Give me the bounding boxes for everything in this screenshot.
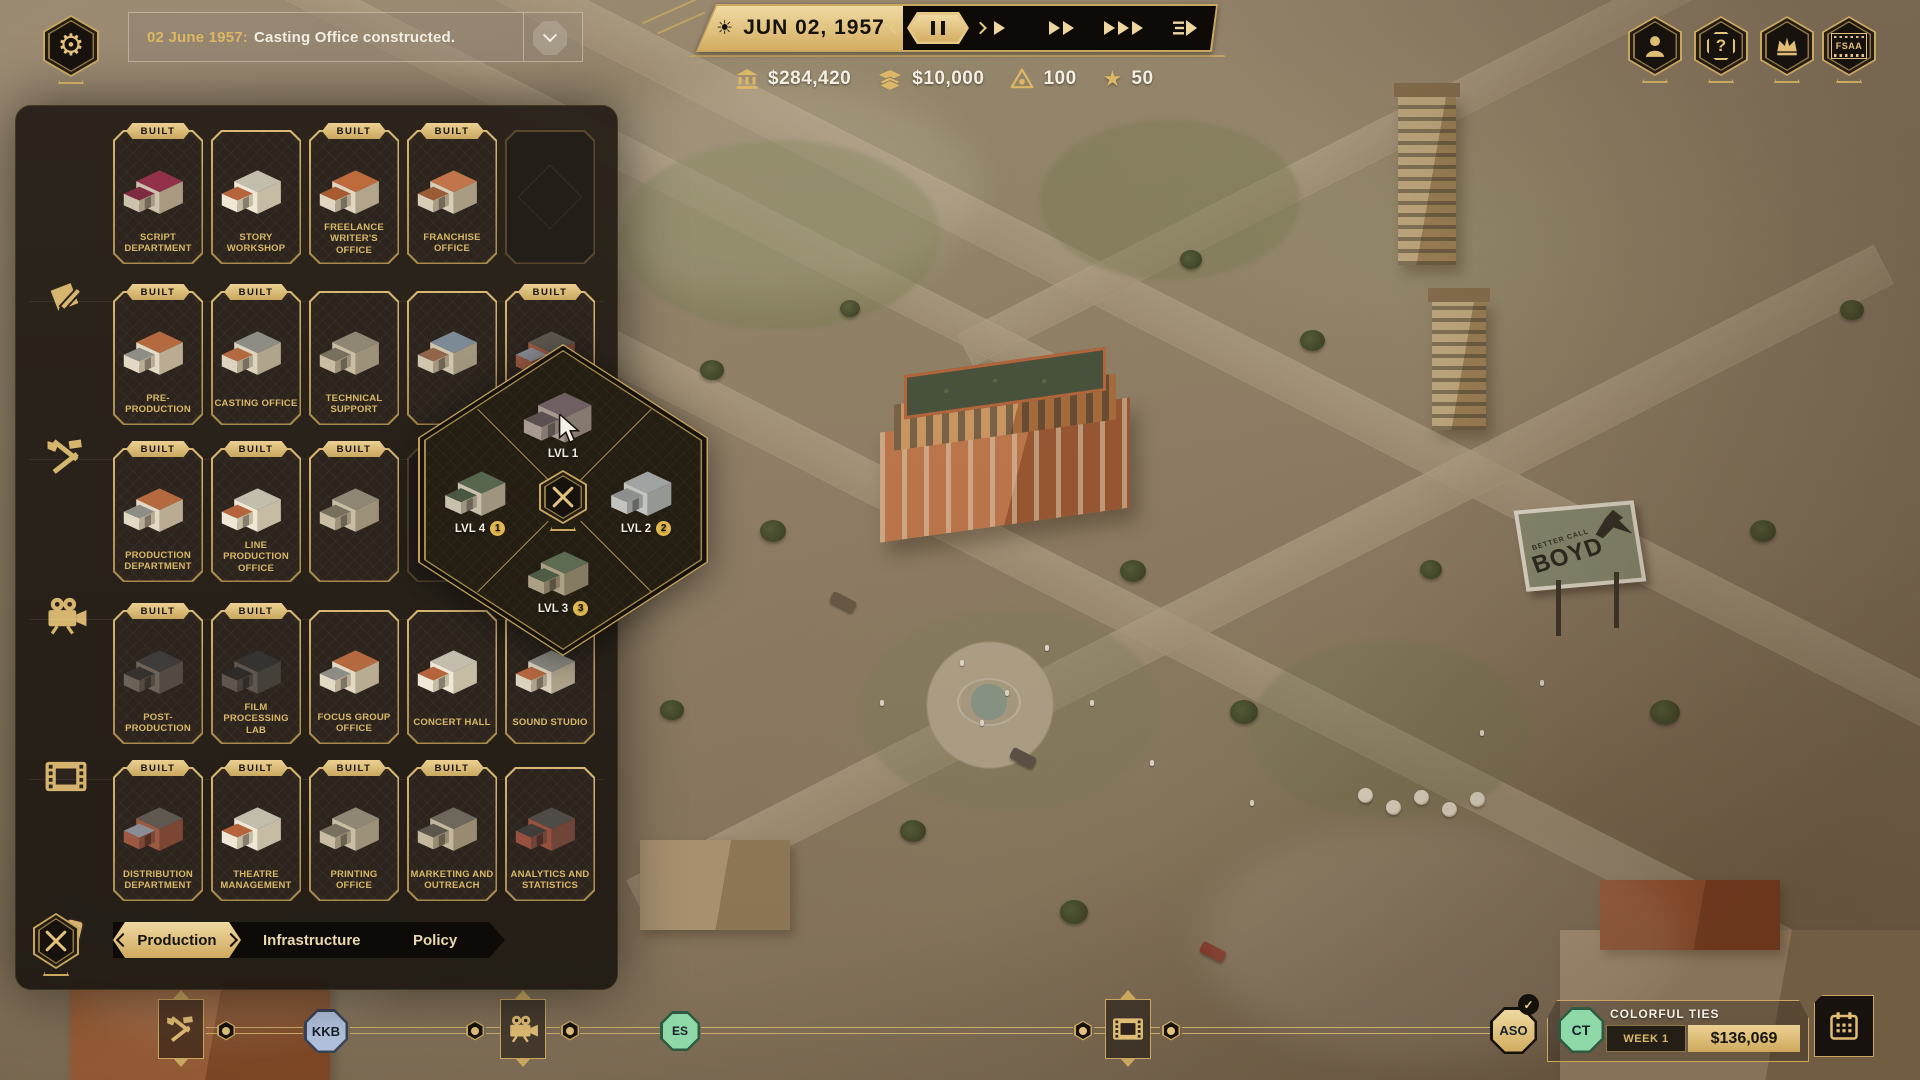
building-thumbnail: [517, 382, 609, 446]
post-production-stage[interactable]: [1105, 999, 1151, 1059]
pipeline-node: [217, 1021, 235, 1041]
building-card[interactable]: PRE-PRODUCTIONBUILT: [113, 291, 203, 425]
tree: [1840, 300, 1864, 320]
current-date: JUN 02, 1957: [743, 16, 885, 40]
built-badge: BUILT: [322, 760, 386, 776]
building-thumbnail: [119, 161, 197, 217]
awards-button[interactable]: FSAA: [1822, 16, 1876, 76]
date-bar-ornament: [688, 53, 1226, 57]
built-badge: BUILT: [126, 284, 190, 300]
building-card-label: FOCUS GROUP OFFICE: [312, 710, 396, 736]
sun-icon: ☀: [716, 17, 733, 40]
building-thumbnail: [605, 462, 687, 519]
building-card-label: CASTING OFFICE: [214, 391, 298, 417]
billboard-leg: [1556, 580, 1561, 636]
pedestrian: [1540, 680, 1544, 686]
notification-message: Casting Office constructed.: [254, 29, 455, 46]
pipeline-line: [350, 1027, 468, 1034]
pedestrian: [960, 660, 964, 666]
skip-to-event-button[interactable]: [1154, 6, 1216, 50]
building-thumbnail: [119, 322, 197, 378]
tree: [760, 520, 786, 542]
built-badge: BUILT: [518, 284, 582, 300]
building-thumbnail: [119, 798, 197, 854]
pipeline-line: [546, 1027, 560, 1034]
plaza: [905, 640, 1075, 770]
tree: [660, 700, 684, 720]
built-badge: BUILT: [126, 123, 190, 139]
building-level-menu: LVL 1LVL 22LVL 33LVL 41: [418, 344, 708, 656]
pipeline-line: [701, 1027, 1073, 1034]
film-category-icon: [37, 747, 95, 805]
tree: [1420, 560, 1442, 579]
building-card-label: MARKETING AND OUTREACH: [410, 867, 494, 893]
billboard: BETTER CALL BOYD: [1514, 500, 1647, 591]
level-count-badge: 1: [490, 521, 505, 536]
building-card[interactable]: CASTING OFFICEBUILT: [211, 291, 301, 425]
speed-controls: [903, 6, 1216, 50]
production-pipeline-bar: KKB ES ASO ✓ COLORFUL TIES WEEK 1 $136,0…: [0, 985, 1920, 1080]
empty-building-slot[interactable]: [505, 130, 595, 264]
building-card-label: SOUND STUDIO: [508, 710, 592, 736]
building-card[interactable]: STORY WORKSHOP: [211, 130, 301, 264]
divider: [523, 13, 524, 61]
level-option-label: LVL 33: [538, 601, 588, 616]
tab-infrastructure[interactable]: Infrastructure: [263, 932, 361, 949]
studio-main-building: [880, 355, 1130, 535]
notification-bar[interactable]: 02 June 1957:Casting Office constructed.: [128, 12, 583, 62]
building-card[interactable]: POST-PRODUCTIONBUILT: [113, 610, 203, 744]
bank-icon: [735, 68, 759, 90]
building-thumbnail: [315, 322, 393, 378]
umbrella: [1414, 790, 1429, 805]
building-card[interactable]: MARKETING AND OUTREACHBUILT: [407, 767, 497, 901]
building-card-label: SCRIPT DEPARTMENT: [116, 230, 200, 256]
level-option-lvl-1[interactable]: LVL 1: [517, 382, 609, 460]
building-thumbnail: [315, 161, 393, 217]
calendar-icon: [1829, 1011, 1859, 1041]
building-card-label: FREELANCE WRITER'S OFFICE: [312, 222, 396, 256]
level-option-lvl-4[interactable]: LVL 41: [439, 462, 521, 536]
fountain: [957, 678, 1021, 726]
building-card-label: LINE PRODUCTION OFFICE: [214, 540, 298, 574]
project-badge-es[interactable]: ES: [660, 1011, 700, 1051]
cash-resource: $284,420: [735, 68, 851, 90]
settings-button[interactable]: ⚙: [43, 15, 99, 77]
building-card[interactable]: ANALYTICS AND STATISTICS: [505, 767, 595, 901]
star-icon: ★: [1103, 68, 1123, 90]
project-title: COLORFUL TIES: [1610, 1007, 1802, 1021]
level-count-badge: 2: [656, 521, 671, 536]
built-badge: BUILT: [126, 603, 190, 619]
tree: [1300, 330, 1325, 351]
level-menu-close-button[interactable]: [539, 470, 587, 524]
question-mark-icon: ?: [1707, 32, 1735, 60]
tree: [1750, 520, 1776, 542]
building-thumbnail: [217, 479, 295, 535]
crown-icon: [1774, 35, 1800, 57]
fastest-icon: [1132, 21, 1143, 35]
building-card-label: STORY WORKSHOP: [214, 230, 298, 256]
pipeline-line: [580, 1027, 660, 1034]
budget-resource: $10,000: [877, 68, 984, 90]
notification-text: 02 June 1957:Casting Office constructed.: [129, 29, 455, 46]
pre-production-stage[interactable]: [158, 999, 204, 1059]
pipeline-node: [466, 1021, 484, 1041]
tree: [1650, 700, 1680, 725]
umbrella: [1386, 800, 1401, 815]
resource-bar: $284,420 $10,000 100 ★ 50: [735, 68, 1154, 90]
level-option-label: LVL 41: [455, 521, 505, 536]
building-thumbnail: [439, 462, 521, 519]
level-count-badge: 3: [573, 601, 588, 616]
building-card[interactable]: FILM PROCESSING LABBUILT: [211, 610, 301, 744]
pipeline-node: [1074, 1021, 1092, 1041]
building-thumbnail: [119, 479, 197, 535]
building-card[interactable]: TECHNICAL SUPPORT: [309, 291, 399, 425]
built-badge: BUILT: [322, 441, 386, 457]
building-thumbnail: [315, 798, 393, 854]
speed-2x-button[interactable]: [1031, 6, 1093, 50]
level-option-label: LVL 1: [548, 448, 578, 460]
staff-button[interactable]: [1628, 16, 1682, 76]
building-card-label: PRINTING OFFICE: [312, 867, 396, 893]
pedestrian: [1090, 700, 1094, 706]
notification-expand-button[interactable]: [533, 21, 567, 55]
building-card-label: THEATRE MANAGEMENT: [214, 867, 298, 893]
built-badge: BUILT: [420, 760, 484, 776]
production-stage[interactable]: [500, 999, 546, 1059]
built-badge: BUILT: [322, 123, 386, 139]
time-control-bar: ☀ JUN 02, 1957: [696, 4, 1218, 52]
building-card[interactable]: SCRIPT DEPARTMENTBUILT: [113, 130, 203, 264]
building-thumbnail: [413, 161, 491, 217]
skip-icon: [1172, 17, 1198, 39]
umbrella: [1470, 792, 1485, 807]
built-badge: BUILT: [126, 441, 190, 457]
building-card-label: FILM PROCESSING LAB: [214, 702, 298, 736]
pause-button[interactable]: [907, 12, 969, 44]
building-thumbnail: [511, 798, 589, 854]
pedestrian: [1045, 645, 1049, 651]
building-card-label: DISTRIBUTION DEPARTMENT: [116, 867, 200, 893]
pipeline-line: [1182, 1027, 1490, 1034]
pedestrian: [980, 720, 984, 726]
project-badge-ct[interactable]: CT: [1558, 1007, 1604, 1053]
influence-resource: 100: [1010, 68, 1076, 90]
tree: [1230, 700, 1258, 724]
fog: [560, 80, 980, 300]
play-icon: [994, 21, 1005, 35]
built-badge: BUILT: [224, 760, 288, 776]
building-card[interactable]: PRINTING OFFICEBUILT: [309, 767, 399, 901]
gear-icon: ⚙: [58, 31, 85, 61]
pipeline-node: [1162, 1021, 1180, 1041]
panel-close-button[interactable]: [33, 913, 79, 969]
pause-icon: [931, 21, 945, 35]
tools-category-icon: [37, 427, 95, 485]
camera-category-icon: [37, 587, 95, 645]
close-icon: [550, 484, 576, 510]
pedestrian: [1005, 690, 1009, 696]
building-card[interactable]: FREELANCE WRITER'S OFFICEBUILT: [309, 130, 399, 264]
tree: [1060, 900, 1088, 924]
level-option-label: LVL 22: [621, 521, 671, 536]
tree: [1120, 560, 1146, 582]
project-week: WEEK 1: [1606, 1025, 1686, 1052]
building-card-label: PRODUCTION DEPARTMENT: [116, 548, 200, 574]
level-option-lvl-2[interactable]: LVL 22: [605, 462, 687, 536]
map-clock-tower: [1432, 300, 1486, 430]
influence-eye-icon: [1010, 68, 1034, 90]
building-thumbnail: [413, 798, 491, 854]
building-card[interactable]: FRANCHISE OFFICEBUILT: [407, 130, 497, 264]
map-building: [640, 840, 790, 930]
speed-3x-button[interactable]: [1093, 6, 1155, 50]
tab-policy[interactable]: Policy: [413, 932, 457, 949]
fsaa-award-icon: FSAA: [1831, 33, 1867, 59]
car: [829, 591, 858, 613]
built-badge: BUILT: [224, 603, 288, 619]
pipeline-line: [1150, 1027, 1160, 1034]
building-card-label: [312, 548, 396, 574]
building-card[interactable]: FOCUS GROUP OFFICE: [309, 610, 399, 744]
pipeline-node: [561, 1021, 579, 1041]
building-card[interactable]: LINE PRODUCTION OFFICEBUILT: [211, 448, 301, 582]
building-thumbnail: [217, 641, 295, 697]
map-lawn: [1250, 640, 1530, 820]
building-card-label: TECHNICAL SUPPORT: [312, 391, 396, 417]
pedestrian: [1150, 760, 1154, 766]
umbrella: [1358, 788, 1373, 803]
building-thumbnail: [217, 161, 295, 217]
level-option-lvl-3[interactable]: LVL 33: [522, 542, 604, 616]
building-thumbnail: [315, 479, 393, 535]
pedestrian: [880, 700, 884, 706]
building-thumbnail: [217, 798, 295, 854]
achievements-button[interactable]: [1760, 16, 1814, 76]
built-badge: BUILT: [126, 760, 190, 776]
check-icon: ✓: [1518, 994, 1539, 1015]
building-card-label: POST-PRODUCTION: [116, 710, 200, 736]
building-card-label: FRANCHISE OFFICE: [410, 230, 494, 256]
script-category-icon: [37, 269, 95, 327]
building-thumbnail: [522, 542, 604, 599]
cash-stack-icon: [877, 68, 903, 90]
project-badge-kkb[interactable]: KKB: [304, 1009, 348, 1053]
map-lawn: [1040, 120, 1300, 280]
billboard-leg: [1614, 572, 1619, 628]
built-badge: BUILT: [224, 284, 288, 300]
tree: [840, 300, 860, 317]
tree: [1180, 250, 1202, 269]
building-thumbnail: [315, 641, 393, 697]
notification-date: 02 June 1957:: [147, 29, 248, 46]
date-display: ☀ JUN 02, 1957: [698, 6, 903, 50]
help-button[interactable]: ?: [1694, 16, 1748, 76]
panel-tab-bar: Production Infrastructure Policy: [113, 922, 505, 958]
umbrella: [1442, 802, 1457, 817]
building-card[interactable]: BUILT: [309, 448, 399, 582]
pedestrian: [1250, 800, 1254, 806]
building-card-label: CONCERT HALL: [410, 710, 494, 736]
schedule-button[interactable]: [1814, 995, 1874, 1057]
building-thumbnail: [217, 322, 295, 378]
chevron-down-icon: [543, 28, 557, 42]
person-icon: [1642, 33, 1668, 59]
tab-production[interactable]: Production: [113, 922, 241, 958]
tree: [900, 820, 926, 842]
building-card[interactable]: THEATRE MANAGEMENTBUILT: [211, 767, 301, 901]
building-card[interactable]: PRODUCTION DEPARTMENTBUILT: [113, 448, 203, 582]
close-icon: [43, 928, 69, 954]
built-badge: BUILT: [224, 441, 288, 457]
building-thumbnail: [119, 641, 197, 697]
fast-forward-icon: [1063, 21, 1074, 35]
building-card-label: PRE-PRODUCTION: [116, 391, 200, 417]
game-screen: BETTER CALL BOYD: [0, 0, 1920, 1080]
building-card[interactable]: DISTRIBUTION DEPARTMENTBUILT: [113, 767, 203, 901]
pedestrian: [1480, 730, 1484, 736]
built-badge: BUILT: [420, 123, 484, 139]
reputation-resource: ★ 50: [1103, 68, 1154, 90]
building-card-label: ANALYTICS AND STATISTICS: [508, 867, 592, 893]
pipeline-line: [486, 1027, 501, 1034]
map-tower: [1398, 95, 1456, 265]
project-amount: $136,069: [1688, 1025, 1800, 1052]
